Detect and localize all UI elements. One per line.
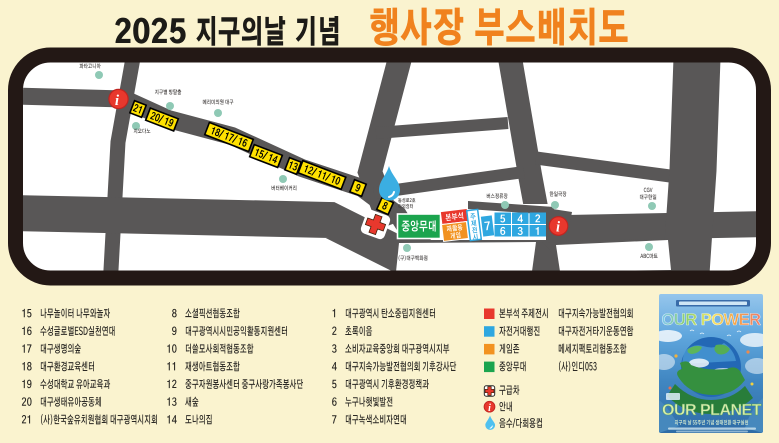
svg-text:i: i	[488, 403, 491, 414]
svg-text:OUR PLANET: OUR PLANET	[662, 402, 762, 419]
svg-text:i: i	[556, 220, 560, 236]
svg-text:OUR POWER: OUR POWER	[661, 311, 761, 329]
